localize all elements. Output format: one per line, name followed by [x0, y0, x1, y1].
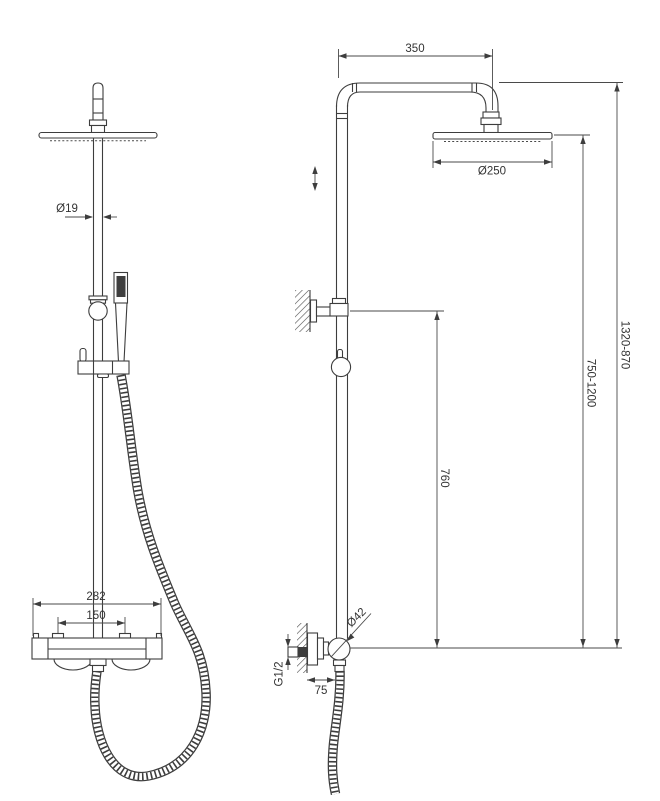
dim-wall-offset: 75: [307, 677, 335, 697]
label-pipe-diameter: Ø19: [56, 203, 78, 215]
supply-stub: [288, 647, 298, 657]
hose-outlet-side: [334, 660, 346, 666]
shower-column-drawing: Ø19: [0, 0, 660, 801]
dim-overall-height: 1320-870: [499, 83, 631, 649]
label-riser-range: 750-1200: [585, 359, 597, 408]
front-view: Ø19: [32, 83, 206, 777]
pipe-top-cap: [93, 83, 103, 120]
dim-riser-range: 750-1200: [554, 135, 597, 648]
head-connector-nut: [90, 120, 107, 126]
height-adjust-arrow: [312, 166, 317, 191]
mixer-valve-front: [32, 634, 162, 672]
inlet-left: [53, 634, 64, 639]
technical-drawing-canvas: Ø19: [0, 0, 660, 801]
supply-connection: [288, 623, 350, 673]
shower-hose-side: [332, 671, 340, 794]
inlet-right: [120, 634, 131, 639]
dim-head-diameter: Ø250: [433, 141, 552, 178]
riser-and-arm-side: [337, 83, 502, 639]
slider-knob-front: [89, 296, 107, 320]
holder-lever: [80, 349, 86, 362]
label-bracket-height: 760: [438, 468, 450, 487]
hand-shower-handle: [116, 303, 128, 362]
label-arm-length: 350: [405, 43, 424, 55]
label-overall-height: 1320-870: [619, 321, 631, 370]
dim-inlet-spacing: 150: [58, 610, 125, 633]
label-head-diameter: Ø250: [478, 166, 506, 178]
label-wall-offset: 75: [315, 685, 328, 697]
dim-pipe-diameter: Ø19: [56, 203, 117, 220]
dim-bracket-height: 760: [350, 311, 450, 648]
overhead-shower-head-side: [433, 133, 552, 142]
spray-face: [117, 276, 126, 297]
wall-hatch-upper: [295, 290, 310, 332]
label-valve-width: 282: [86, 591, 105, 603]
label-connector-diameter: Ø42: [345, 606, 369, 630]
overhead-shower-head-front: [39, 133, 157, 141]
dim-thread-size: G1/2: [274, 634, 291, 686]
shower-hose-front: [95, 375, 206, 777]
side-view: 350 Ø250: [274, 43, 631, 794]
hose-outlet: [90, 659, 106, 666]
label-inlet-spacing: 150: [86, 610, 105, 622]
wall-bracket: [295, 290, 348, 332]
valve-knob-right: [112, 659, 150, 670]
mounting-plate: [308, 633, 318, 665]
valve-knob-left: [54, 659, 92, 670]
label-thread-size: G1/2: [274, 662, 286, 687]
hand-shower: [114, 273, 128, 363]
head-connector-side: [484, 125, 498, 133]
dim-arm-length: 350: [339, 43, 493, 110]
